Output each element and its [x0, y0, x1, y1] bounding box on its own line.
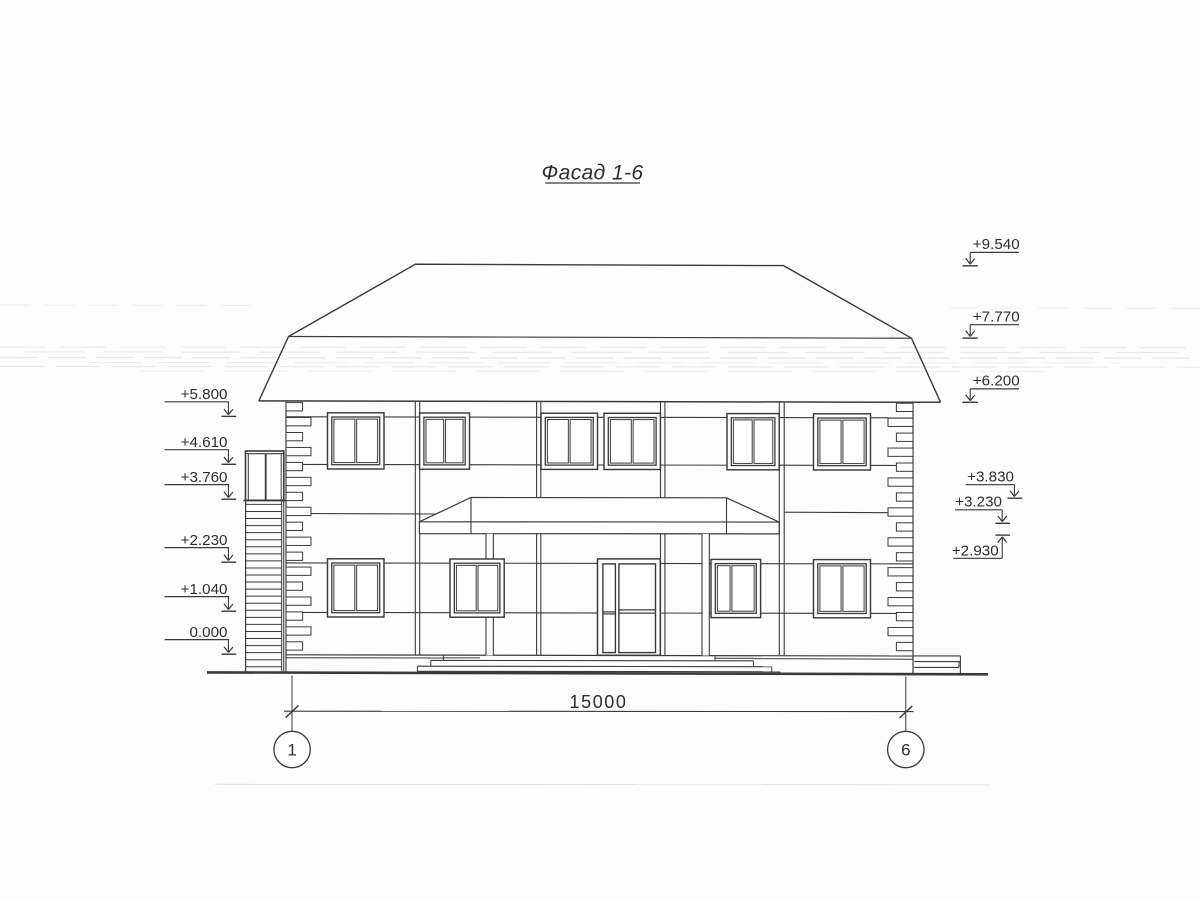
svg-text:+3.230: +3.230 [955, 493, 1002, 510]
svg-text:0.000: 0.000 [189, 624, 227, 641]
svg-text:+1.040: +1.040 [181, 581, 228, 598]
svg-text:+4.610: +4.610 [181, 434, 228, 451]
svg-text:+5.800: +5.800 [181, 386, 228, 403]
svg-text:Фасад 1-6: Фасад 1-6 [542, 161, 644, 184]
svg-text:+9.540: +9.540 [973, 236, 1020, 253]
svg-text:15000: 15000 [569, 692, 627, 712]
svg-text:+7.770: +7.770 [973, 309, 1020, 326]
svg-text:1: 1 [287, 741, 296, 760]
svg-text:+2.230: +2.230 [181, 532, 228, 549]
svg-text:+3.830: +3.830 [967, 468, 1014, 485]
svg-text:+2.930: +2.930 [952, 543, 999, 560]
svg-text:6: 6 [901, 741, 910, 760]
svg-text:+6.200: +6.200 [973, 373, 1020, 390]
svg-text:+3.760: +3.760 [181, 469, 228, 486]
